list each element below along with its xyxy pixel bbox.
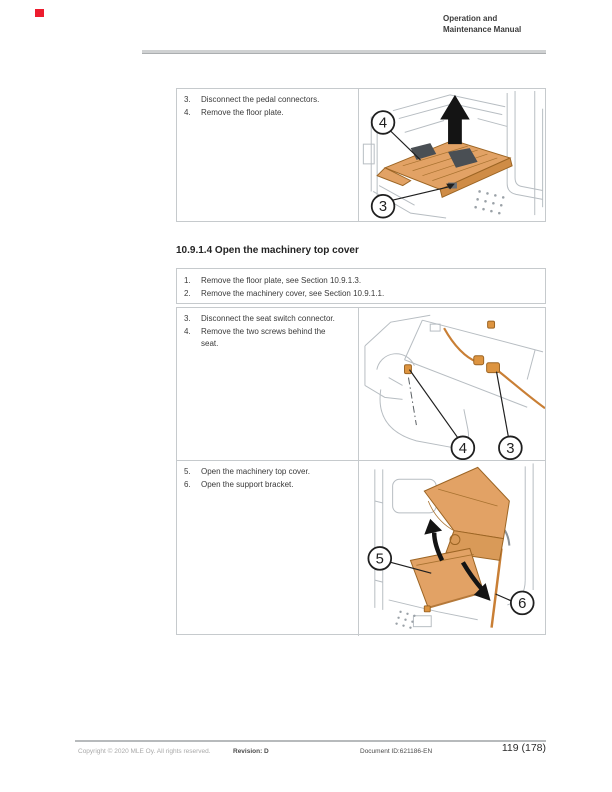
footer-document-id: Document ID:621186-EN [360,748,432,755]
step-text: Remove the floor plate. [201,107,284,120]
step-text: Open the machinery top cover. [201,466,310,479]
callout-4: 4 [372,111,421,160]
print-marker [35,9,44,17]
step-text: Disconnect the pedal connectors. [201,94,319,107]
footer-revision: Revision: D [233,748,269,755]
step-item: 4. Remove the two screws behind the seat… [184,326,352,351]
svg-text:4: 4 [379,115,387,131]
step-number: 3. [184,94,201,107]
top-cover-illustration: 5 6 [359,461,545,635]
step-text: Remove the machinery cover, see Section … [201,288,384,301]
up-arrow [440,95,470,144]
step-item: 4. Remove the floor plate. [184,107,352,120]
table-pedal-text-cell: 3. Disconnect the pedal connectors. 4. R… [177,89,358,221]
footer-copyright: Copyright © 2020 MLE Oy. All rights rese… [78,748,211,755]
step-text: Remove the floor plate, see Section 10.9… [201,275,361,288]
page-header: Operation and Maintenance Manual [443,13,521,35]
top-cover-highlight [410,467,509,627]
floor-plate-illustration: 4 3 [359,89,545,221]
callout-3: 3 [497,372,522,460]
header-rule [142,50,546,54]
floor-perforations [474,190,504,214]
step-text: Remove the two screws behind the seat. [201,326,337,351]
svg-text:6: 6 [518,596,526,612]
step-item: 5. Open the machinery top cover. [184,466,352,479]
header-line-2: Maintenance Manual [443,24,521,35]
callout-6: 6 [496,592,534,615]
figure-seat-switch: 4 3 [358,308,545,460]
step-item: 2. Remove the machinery cover, see Secti… [184,288,539,301]
step-item: 3. Disconnect the seat switch connector. [184,313,352,326]
step-number: 6. [184,479,201,492]
figure-top-cover: 5 6 [358,461,545,636]
row-cover-text-cell: 5. Open the machinery top cover. 6. Open… [177,461,358,636]
step-number: 4. [184,326,201,351]
svg-text:4: 4 [459,441,467,457]
machine-line-art [365,315,543,448]
floor-plate-highlight [377,140,512,197]
step-item: 3. Disconnect the pedal connectors. [184,94,352,107]
section-heading: 10.9.1.4 Open the machinery top cover [176,245,359,256]
figure-floor-plate: 4 3 [358,89,545,221]
hidden-screw-line [409,378,417,425]
step-number: 1. [184,275,201,288]
step-text: Open the support bracket. [201,479,294,492]
header-line-1: Operation and [443,13,521,24]
svg-text:5: 5 [376,551,384,567]
step-number: 3. [184,313,201,326]
step-number: 2. [184,288,201,301]
row-top-cover: 5. Open the machinery top cover. 6. Open… [177,460,545,636]
row-seat-text-cell: 3. Disconnect the seat switch connector.… [177,308,358,460]
table-pedal: 3. Disconnect the pedal connectors. 4. R… [176,88,546,222]
seat-switch-illustration: 4 3 [359,308,545,460]
step-number: 5. [184,466,201,479]
step-item: 1. Remove the floor plate, see Section 1… [184,275,539,288]
table-intro: 1. Remove the floor plate, see Section 1… [176,268,546,304]
step-number: 4. [184,107,201,120]
step-text: Disconnect the seat switch connector. [201,313,335,326]
step-item: 6. Open the support bracket. [184,479,352,492]
svg-text:3: 3 [379,199,387,215]
table-procedure: 3. Disconnect the seat switch connector.… [176,307,546,635]
svg-text:3: 3 [506,441,514,457]
row-seat-switch: 3. Disconnect the seat switch connector.… [177,308,545,460]
footer-page-number: 119 (178) [446,742,546,754]
floor-perforations [395,611,415,629]
